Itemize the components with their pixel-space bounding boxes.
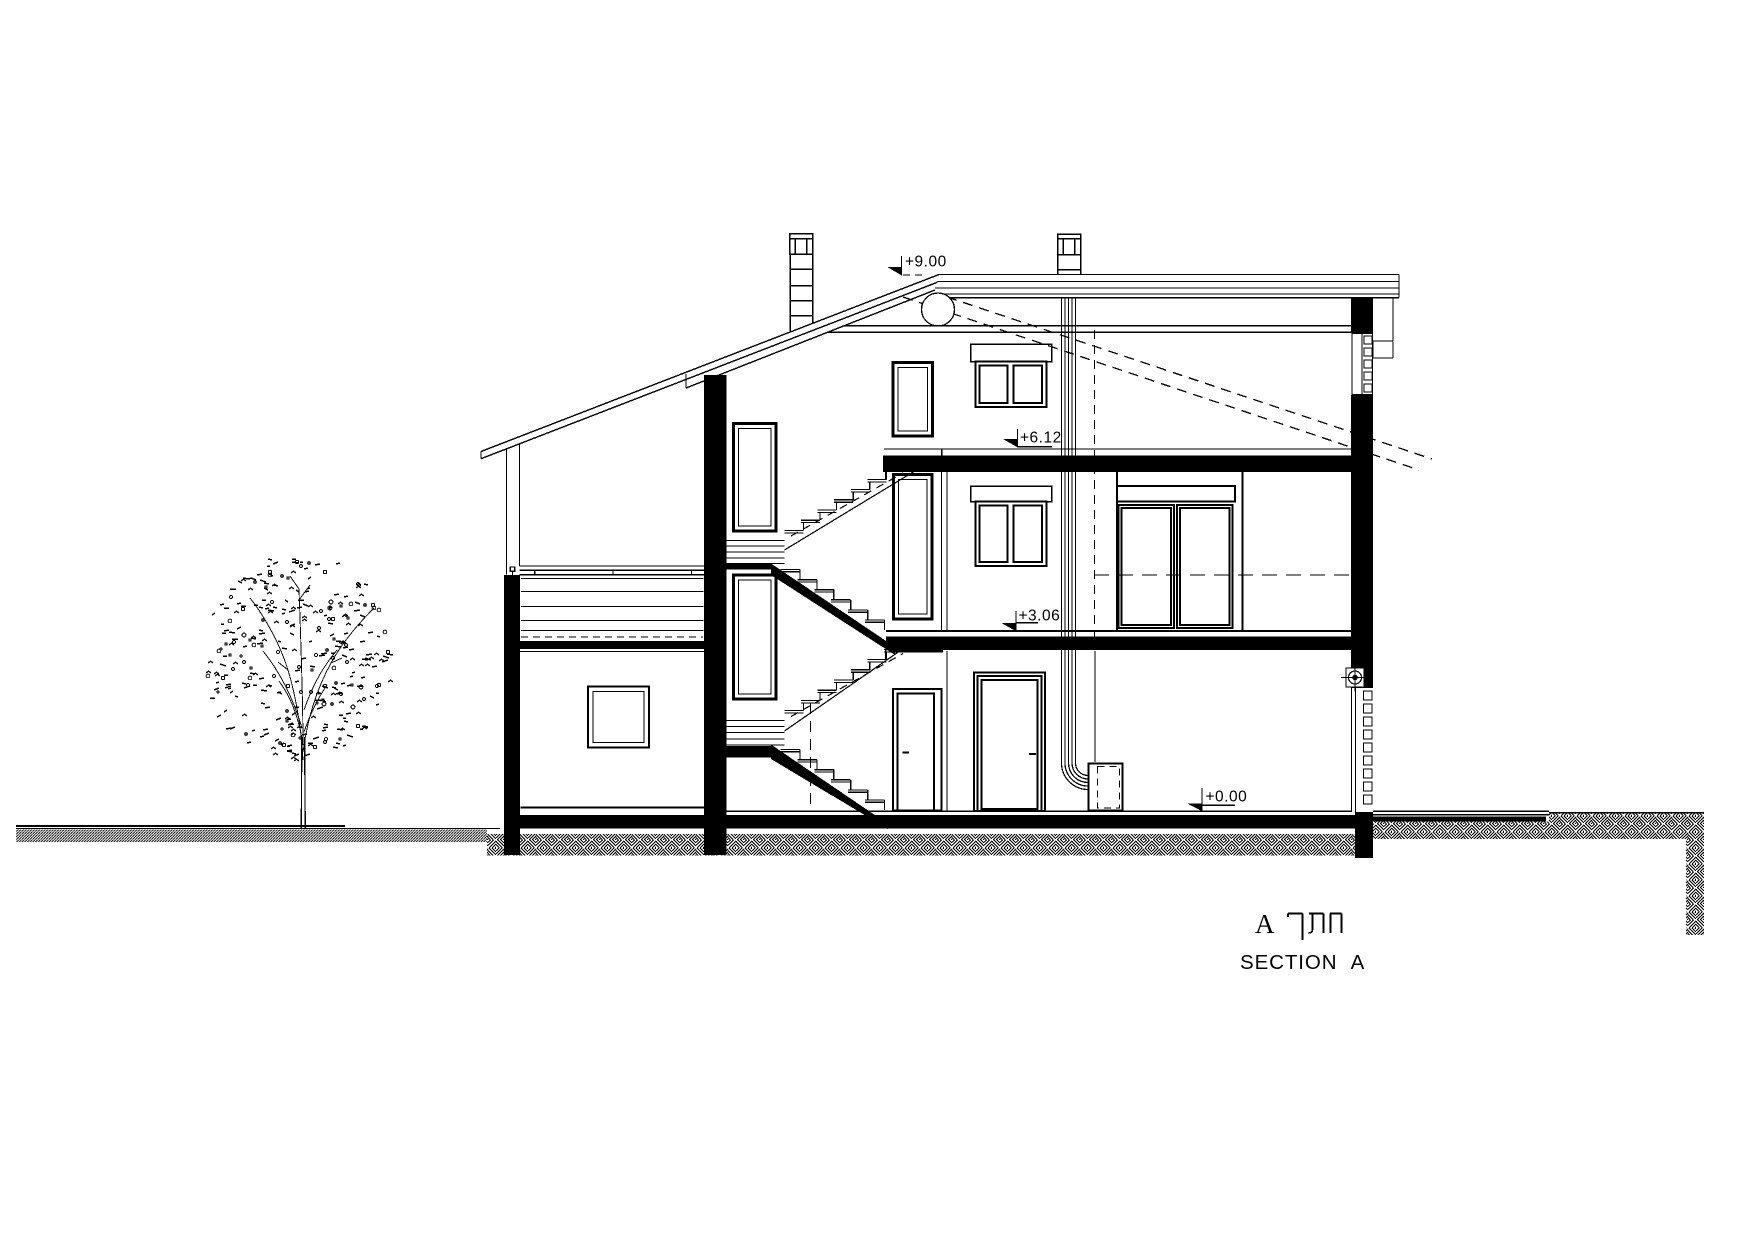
svg-text:A: A (1255, 909, 1275, 939)
svg-text:+0.00: +0.00 (1206, 789, 1248, 806)
svg-text:+6.12: +6.12 (1020, 430, 1062, 447)
svg-text:SECTION A: SECTION A (1240, 951, 1365, 974)
svg-text:+9.00: +9.00 (905, 254, 947, 271)
svg-text:+3.06: +3.06 (1019, 608, 1061, 625)
